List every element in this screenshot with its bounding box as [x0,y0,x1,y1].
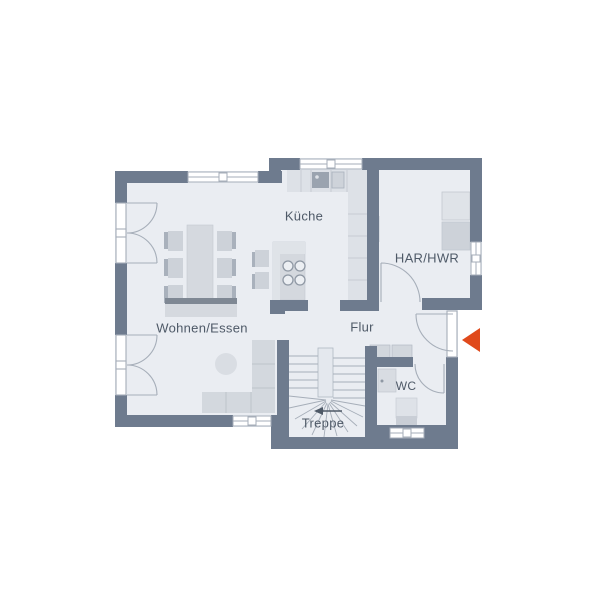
kitchen-counter-right [348,192,367,300]
kitchen-faucet [315,175,319,179]
room-label-har-hwr: HAR/HWR [395,251,459,266]
stair-void [318,348,333,397]
har-dryer [442,222,470,250]
kitchen-appliance [332,172,344,188]
sofa-horizontal [202,392,275,413]
room-label-wohnen-essen: Wohnen/Essen [156,321,248,336]
kitchen-sink [312,172,329,188]
dining-table [187,225,213,303]
dining-chair [217,231,232,251]
wc-sink-tap [381,380,384,383]
stool [255,250,269,267]
room-label-flur: Flur [350,320,374,335]
sideboard [165,304,237,317]
stool-back [252,252,255,267]
round-rug [215,353,237,375]
french-door-handle [116,361,126,369]
window-mullion [327,160,335,168]
har-washer [442,192,470,220]
floorplan: Wohnen/Essen Küche HAR/HWR Flur WC Trepp… [0,0,600,600]
window-mullion [219,173,227,181]
window-mullion [248,417,256,425]
entrance-arrow-icon [462,328,480,352]
window-mullion [403,429,411,437]
dining-chair [217,258,232,278]
french-door-handle [116,229,126,237]
floorplan-drawing [0,0,600,600]
kitchen-island-side [273,242,280,300]
entrance-door-frame [447,311,457,357]
dining-chair [168,258,183,278]
stool [255,272,269,289]
wc-toilet-bowl [396,398,417,418]
wc-toilet-tank [396,416,417,426]
room-label-treppe: Treppe [302,416,345,431]
room-label-kueche: Küche [285,209,323,224]
dining-chair [168,231,183,251]
sideboard-top [165,298,237,304]
window-mullion [472,255,480,262]
room-label-wc: WC [396,379,417,393]
stool-back [252,274,255,289]
